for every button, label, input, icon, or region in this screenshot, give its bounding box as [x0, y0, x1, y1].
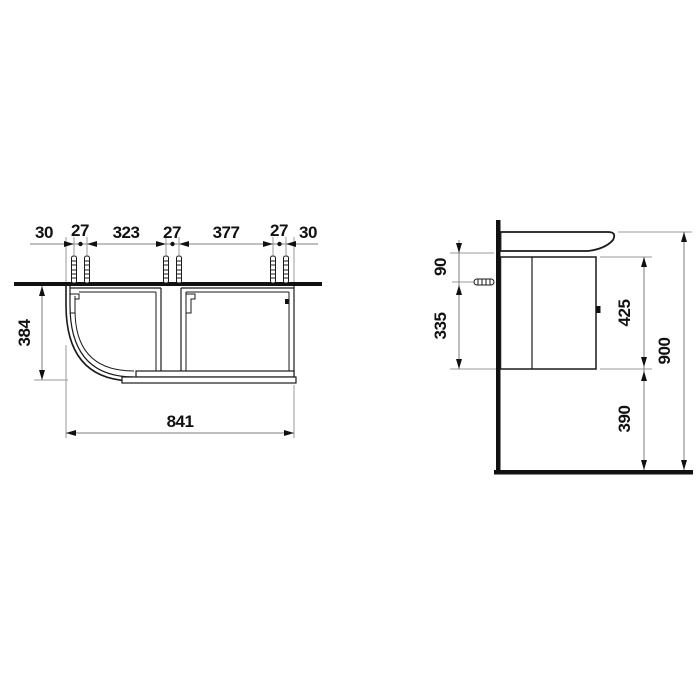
front-rail-upper — [136, 371, 294, 377]
side-view: 90 335 425 390 900 — [431, 220, 693, 475]
dim-label-323: 323 — [113, 223, 140, 242]
side-floor-line — [494, 470, 693, 475]
bolt-axis-dot — [78, 242, 82, 246]
wall-bolt-icon — [452, 279, 494, 285]
dim-label-377: 377 — [213, 223, 240, 242]
side-cabinet — [501, 257, 601, 369]
dim-label-425: 425 — [615, 300, 634, 327]
side-right-dimensions: 425 390 — [600, 257, 652, 470]
bolt-axis-dot — [277, 242, 281, 246]
plan-depth-dimension: 384 — [15, 286, 68, 380]
dim-label-390: 390 — [615, 406, 634, 433]
side-total-height-dimension: 900 — [618, 232, 692, 470]
dim-label-841: 841 — [167, 412, 194, 431]
plan-view: 30 27 323 27 377 27 30 — [14, 221, 322, 438]
mounting-bolt-icon — [72, 256, 77, 283]
hinge-plate — [285, 299, 289, 304]
door-handle — [596, 306, 601, 313]
mounting-bolt-icon — [85, 256, 90, 283]
dim-label-30-left: 30 — [35, 223, 53, 242]
mounting-bolt-icon — [271, 256, 276, 283]
front-rail-lower — [122, 377, 296, 383]
mounting-bolt-icon — [177, 256, 182, 283]
dim-label-335: 335 — [431, 313, 450, 340]
technical-dimension-drawing: 30 27 323 27 377 27 30 — [0, 0, 700, 700]
dim-label-30-right: 30 — [299, 223, 317, 242]
dim-label-900: 900 — [655, 338, 674, 365]
side-left-dimensions: 90 335 — [431, 240, 496, 369]
mounting-bolt-icon — [164, 256, 169, 283]
mounting-bolts — [72, 256, 289, 283]
dim-label-90: 90 — [431, 258, 450, 276]
mounting-bolt-icon — [284, 256, 289, 283]
hinge-bracket — [186, 294, 195, 313]
dim-label-27-left: 27 — [71, 221, 89, 240]
plan-cabinet-outline — [66, 286, 296, 383]
drawing-svg: 30 27 323 27 377 27 30 — [0, 0, 700, 700]
plan-width-dimension: 841 — [66, 345, 294, 438]
dim-label-27-middle: 27 — [163, 223, 181, 242]
dim-label-384: 384 — [15, 319, 34, 347]
dim-label-27-right: 27 — [270, 221, 288, 240]
bolt-axis-dot — [170, 242, 174, 246]
washbasin-profile — [501, 232, 615, 251]
